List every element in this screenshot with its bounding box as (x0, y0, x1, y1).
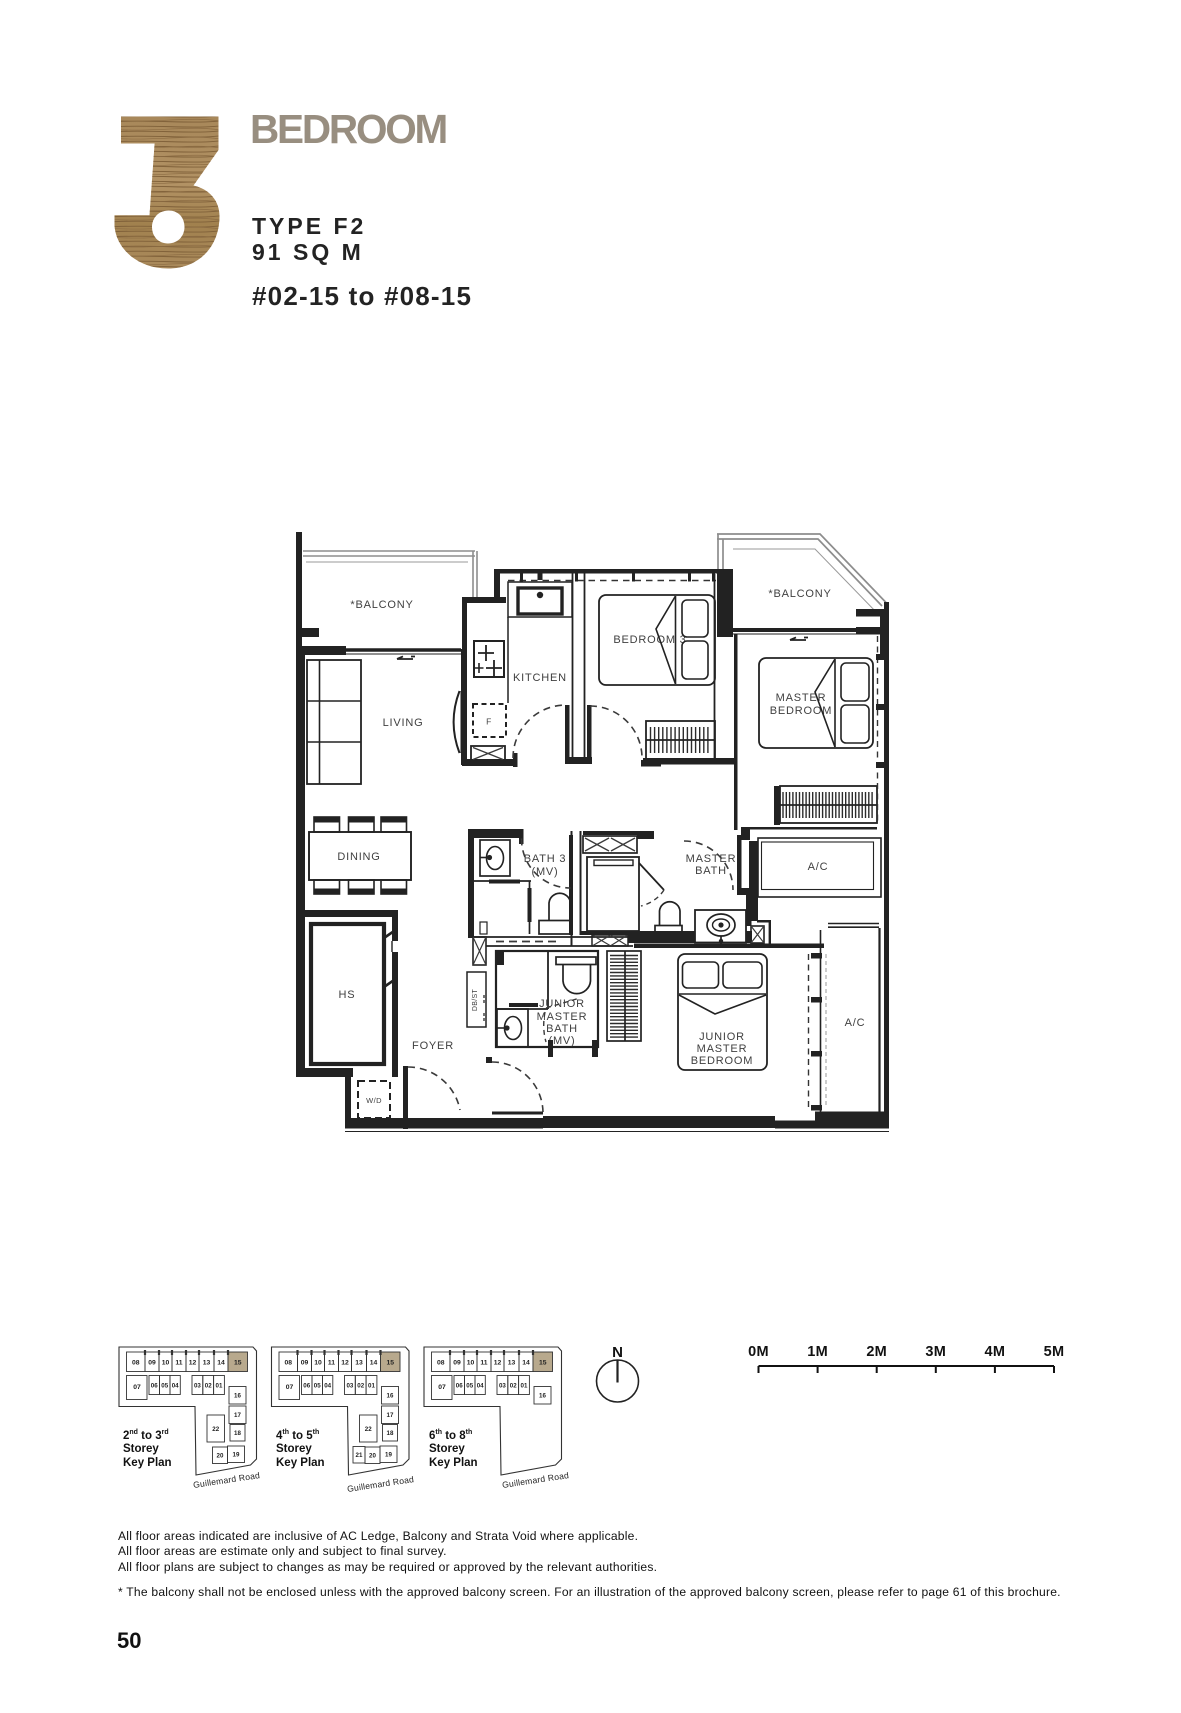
svg-text:17: 17 (387, 1412, 394, 1419)
svg-text:12: 12 (494, 1360, 502, 1367)
svg-text:02: 02 (357, 1383, 364, 1390)
svg-text:04: 04 (477, 1383, 484, 1390)
svg-text:3M: 3M (925, 1344, 946, 1360)
svg-text:02: 02 (510, 1383, 517, 1390)
svg-text:F: F (486, 717, 492, 727)
svg-text:05: 05 (161, 1383, 168, 1390)
svg-text:03: 03 (194, 1383, 201, 1390)
svg-text:15: 15 (386, 1360, 394, 1367)
svg-text:04: 04 (324, 1383, 331, 1390)
svg-text:05: 05 (466, 1383, 473, 1390)
svg-text:BATH 3: BATH 3 (524, 853, 567, 865)
svg-text:14: 14 (370, 1360, 378, 1367)
svg-text:22: 22 (365, 1426, 372, 1433)
svg-text:2M: 2M (866, 1344, 887, 1360)
svg-text:A/C: A/C (808, 861, 829, 873)
svg-text:FOYER: FOYER (412, 1040, 454, 1052)
svg-text:14: 14 (522, 1360, 530, 1367)
svg-text:MASTER: MASTER (686, 853, 737, 865)
svg-text:06: 06 (303, 1383, 310, 1390)
svg-text:13: 13 (355, 1360, 363, 1367)
svg-text:5M: 5M (1044, 1344, 1065, 1360)
svg-text:09: 09 (301, 1360, 309, 1367)
svg-text:DINING: DINING (337, 851, 380, 863)
svg-text:11: 11 (328, 1360, 335, 1367)
svg-text:04: 04 (172, 1383, 179, 1390)
svg-text:HS: HS (339, 989, 356, 1001)
svg-text:05: 05 (314, 1383, 321, 1390)
svg-text:BEDROOM: BEDROOM (691, 1055, 753, 1067)
svg-text:12: 12 (341, 1360, 349, 1367)
svg-text:03: 03 (346, 1383, 353, 1390)
svg-text:21: 21 (356, 1452, 363, 1459)
svg-text:*BALCONY: *BALCONY (768, 588, 831, 600)
svg-text:13: 13 (508, 1360, 516, 1367)
svg-text:1M: 1M (807, 1344, 828, 1360)
svg-text:19: 19 (233, 1452, 240, 1459)
svg-text:JUNIOR: JUNIOR (699, 1031, 745, 1043)
svg-text:*BALCONY: *BALCONY (350, 599, 413, 611)
svg-text:18: 18 (387, 1430, 394, 1437)
svg-text:15: 15 (234, 1360, 242, 1367)
svg-text:12: 12 (189, 1360, 197, 1367)
svg-text:08: 08 (284, 1360, 292, 1367)
svg-text:13: 13 (203, 1360, 211, 1367)
svg-text:07: 07 (438, 1384, 446, 1391)
svg-text:Guillemard Road: Guillemard Road (346, 1474, 414, 1494)
svg-text:06: 06 (456, 1383, 463, 1390)
svg-text:Guillemard Road: Guillemard Road (192, 1470, 260, 1490)
svg-text:20: 20 (217, 1453, 224, 1460)
svg-text:10: 10 (467, 1360, 475, 1367)
svg-text:W/D: W/D (366, 1096, 382, 1105)
svg-text:16: 16 (234, 1393, 241, 1400)
svg-text:10: 10 (314, 1360, 322, 1367)
svg-text:LIVING: LIVING (383, 717, 424, 729)
svg-text:22: 22 (212, 1426, 219, 1433)
svg-text:BATH: BATH (695, 865, 727, 877)
svg-text:KITCHEN: KITCHEN (513, 672, 567, 684)
svg-text:01: 01 (368, 1383, 375, 1390)
svg-text:08: 08 (132, 1360, 140, 1367)
svg-text:4M: 4M (985, 1344, 1006, 1360)
svg-text:16: 16 (387, 1393, 394, 1400)
svg-text:0M: 0M (748, 1344, 769, 1360)
svg-text:07: 07 (133, 1384, 141, 1391)
svg-text:09: 09 (148, 1360, 156, 1367)
svg-text:01: 01 (521, 1383, 528, 1390)
svg-text:A/C: A/C (845, 1017, 866, 1029)
svg-text:09: 09 (453, 1360, 461, 1367)
svg-text:JUNIOR: JUNIOR (539, 998, 585, 1010)
svg-text:03: 03 (499, 1383, 506, 1390)
svg-text:N: N (612, 1344, 623, 1361)
svg-text:16: 16 (539, 1393, 546, 1400)
svg-text:08: 08 (437, 1360, 445, 1367)
svg-text:18: 18 (234, 1430, 241, 1437)
svg-text:02: 02 (205, 1383, 212, 1390)
svg-text:15: 15 (539, 1360, 547, 1367)
svg-text:14: 14 (217, 1360, 225, 1367)
svg-text:19: 19 (385, 1452, 392, 1459)
svg-text:07: 07 (286, 1384, 294, 1391)
svg-text:BATH: BATH (546, 1023, 578, 1035)
svg-text:DB/ST: DB/ST (472, 989, 479, 1012)
svg-text:20: 20 (369, 1453, 376, 1460)
svg-text:17: 17 (234, 1412, 241, 1419)
svg-text:06: 06 (151, 1383, 158, 1390)
svg-text:10: 10 (162, 1360, 170, 1367)
svg-text:11: 11 (175, 1360, 182, 1367)
svg-text:01: 01 (216, 1383, 223, 1390)
svg-text:11: 11 (480, 1360, 487, 1367)
svg-text:MASTER: MASTER (697, 1043, 748, 1055)
svg-text:(MV): (MV) (531, 866, 558, 878)
